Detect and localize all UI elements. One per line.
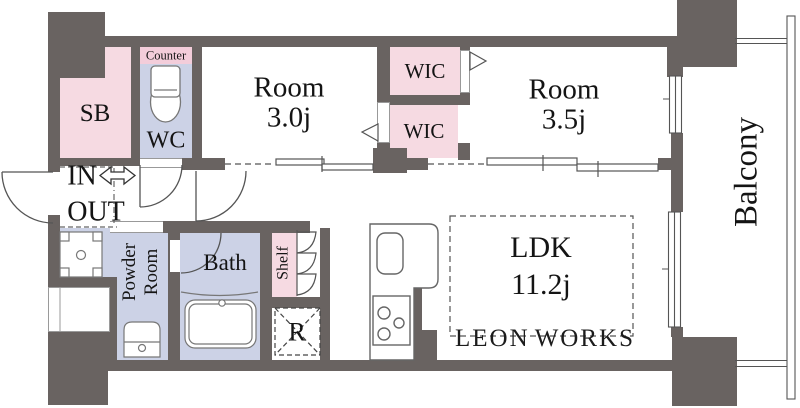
kitchen-counter <box>370 224 438 360</box>
wc-label: WC <box>147 128 186 153</box>
watermark-word1: LEON <box>455 325 530 353</box>
counter-label: Counter <box>146 49 186 62</box>
shelf-label: Shelf <box>276 246 293 280</box>
room-b-name: Room <box>529 74 600 106</box>
window-room-b <box>663 76 682 133</box>
ldk-label: LDK 11.2j <box>510 229 572 303</box>
room-b-label: Room 3.5j <box>529 75 600 136</box>
wc-door <box>140 165 182 207</box>
powder-room-label: Powder Room <box>119 243 163 301</box>
floor-plan: SB Counter WC Room 3.0j WIC WIC Room 3.5… <box>0 0 800 408</box>
wic-upper-label: WIC <box>405 60 446 82</box>
ldk-size: 11.2j <box>511 268 571 301</box>
in-label: IN <box>67 161 97 190</box>
wic-upper-door-triangle <box>470 52 486 70</box>
shelf-folding-doors <box>297 230 316 296</box>
watermark-word2: WORKS <box>535 325 635 353</box>
refrigerator-label: R <box>288 318 305 345</box>
sliding-door-room-b <box>428 155 658 177</box>
in-out-arrow-icon <box>100 167 135 184</box>
room-a-label: Room 3.0j <box>254 73 325 134</box>
hallway-door <box>196 171 246 221</box>
window-ldk <box>662 212 681 327</box>
toilet-icon <box>151 66 181 122</box>
room-b-size: 3.5j <box>542 104 586 136</box>
powder-line1: Powder <box>119 243 140 301</box>
bath-label: Bath <box>203 251 246 275</box>
ldk-name: LDK <box>510 231 572 264</box>
entrance-door <box>2 172 53 223</box>
sb-label: SB <box>80 101 111 127</box>
kitchen-sink-icon <box>377 233 403 274</box>
powder-line2: Room <box>141 249 162 295</box>
watermark: LEON WORKS <box>455 325 635 353</box>
vanity-sink-icon <box>124 322 160 357</box>
bathtub-icon <box>181 292 258 348</box>
balcony-label: Balcony <box>730 117 765 227</box>
room-a-size: 3.0j <box>267 102 311 134</box>
washing-machine-icon <box>60 232 102 277</box>
wic-lower-label: WIC <box>404 120 445 142</box>
out-label: OUT <box>67 197 125 226</box>
wic-lower-door-triangle <box>362 124 378 141</box>
room-a-name: Room <box>254 72 325 104</box>
sliding-door-room-a <box>225 156 373 172</box>
